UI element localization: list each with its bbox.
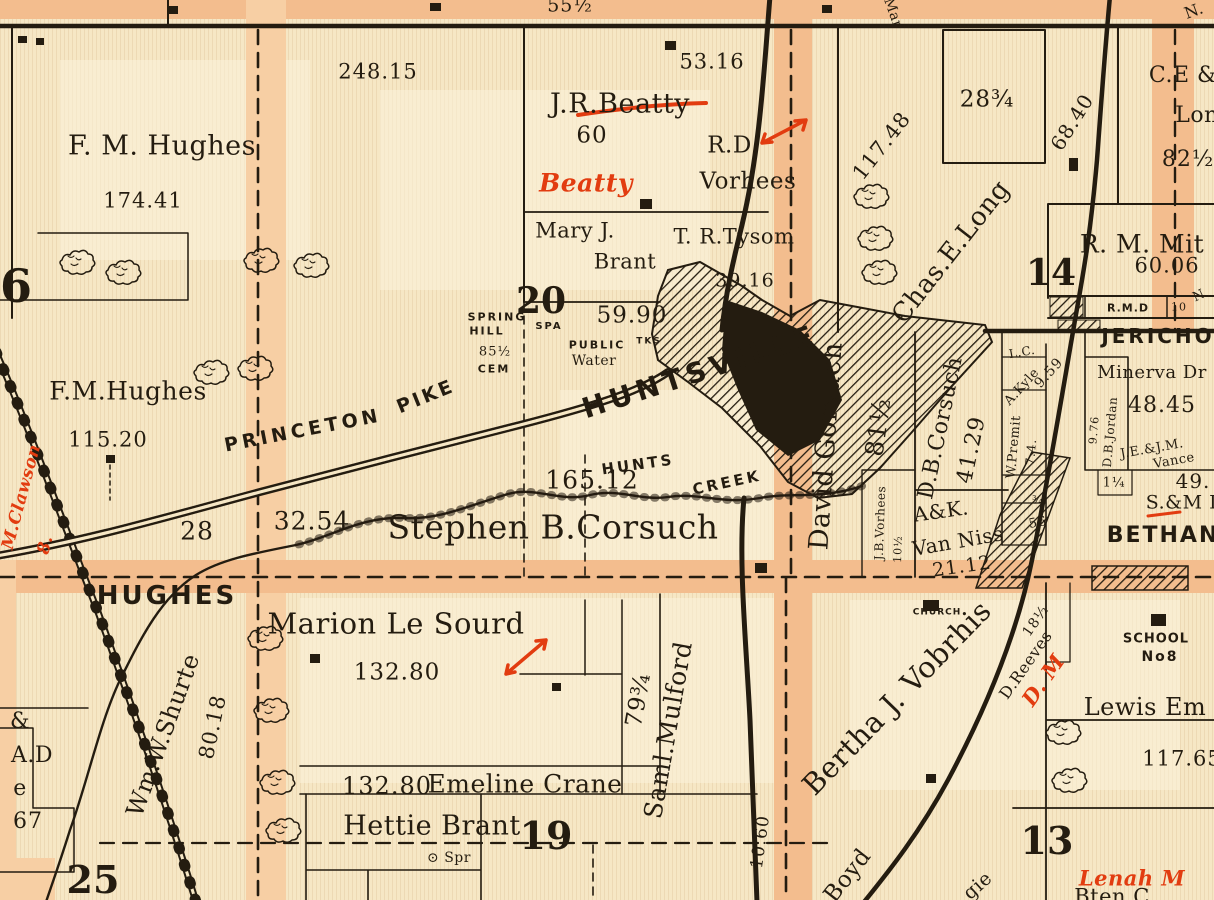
map-label-chas-e-long: Chas.E.Long bbox=[888, 176, 1015, 328]
map-label-80-18: 80.18 bbox=[196, 693, 230, 761]
map-label-60-06: 60.06 bbox=[1134, 256, 1199, 277]
map-label-wm-w-shurte: Wm.W.Shurte bbox=[122, 650, 203, 819]
map-label-no8: No8 bbox=[1141, 650, 1178, 664]
map-label-school: SCHOOL bbox=[1123, 633, 1189, 646]
map-label-53-16: 53.16 bbox=[679, 52, 744, 73]
map-label-132-80: 132.80 bbox=[354, 662, 440, 685]
map-label-115-20: 115.20 bbox=[68, 430, 147, 451]
map-label-9-59: 9.59 bbox=[1032, 355, 1066, 391]
map-label-jericho: JERICHO bbox=[1101, 326, 1214, 346]
map-label-14: 14 bbox=[1026, 255, 1076, 291]
map-label-label: ¾ bbox=[1032, 495, 1044, 506]
map-label-spa: SPA bbox=[535, 322, 562, 332]
map-label-w-premit: W.Premit bbox=[1005, 415, 1023, 479]
map-label-8: 8. bbox=[35, 534, 56, 557]
map-label-lon: Lon bbox=[1175, 105, 1214, 127]
map-label-lewis-em: Lewis Em bbox=[1084, 695, 1207, 719]
map-label-label: & bbox=[10, 711, 30, 733]
map-label-117-48: 117.48 bbox=[849, 108, 914, 184]
map-label-28: 28¾ bbox=[960, 89, 1015, 112]
map-label-f-m-hughes: F.M.Hughes bbox=[49, 379, 207, 404]
map-label-81: 81½ bbox=[862, 396, 895, 458]
map-label-creek: CREEK bbox=[691, 468, 762, 497]
map-label-vorhees: Vorhees bbox=[700, 171, 797, 194]
map-label-saml-mulford: Saml.Mulford bbox=[640, 639, 696, 820]
map-label-21-12: 21.12 bbox=[931, 553, 992, 580]
map-label-117-65: 117.65 bbox=[1142, 749, 1214, 770]
map-label-bertha-j-vobrhis: Bertha J. Vobrhis bbox=[797, 596, 996, 801]
map-label-85: 85½ bbox=[479, 346, 511, 359]
map-label-248-15: 248.15 bbox=[338, 62, 417, 83]
map-label-60: 60 bbox=[576, 125, 607, 148]
map-label-132-80: 132.80 bbox=[342, 774, 432, 798]
map-label-j-b-vorhees: J.B.Vorhees bbox=[873, 486, 888, 561]
map-label-6: 6 bbox=[0, 263, 32, 309]
map-label-a-k: A&K. bbox=[912, 497, 970, 525]
map-label-mary-j: Mary J. bbox=[535, 221, 615, 242]
map-label-brant: Brant bbox=[594, 252, 656, 273]
map-labels: 55½MarN.248.1553.16J.R.Beatty60R.D.Vorhe… bbox=[0, 0, 1214, 900]
map-label-r-d: R.D. bbox=[707, 135, 759, 158]
map-label-s-m-l: S.&M L bbox=[1146, 494, 1214, 513]
map-label-39-16: 39.16 bbox=[715, 272, 774, 291]
map-label-20: 20 bbox=[516, 283, 566, 319]
map-label-e: e bbox=[13, 778, 27, 800]
map-label-25: 25 bbox=[67, 861, 120, 899]
map-label-56: 56 bbox=[1028, 515, 1049, 531]
map-label-n: N. bbox=[1182, 0, 1205, 22]
map-label-7-4: 7.4. bbox=[1024, 438, 1038, 466]
map-label-marion-le-sourd: Marion Le Sourd bbox=[267, 610, 524, 639]
map-label-10-60: 10.60 bbox=[749, 814, 773, 870]
map-label-tks: TKS bbox=[636, 338, 662, 347]
map-label-f-m-hughes: F. M. Hughes bbox=[68, 133, 256, 160]
map-label-d-b-jordan: D.B.Jordan bbox=[1101, 396, 1119, 468]
map-label-van-niss: Van Niss bbox=[911, 523, 1005, 559]
map-label-public: PUBLIC bbox=[569, 340, 626, 351]
map-label-10: 10 bbox=[1171, 302, 1187, 313]
map-label-water: Water bbox=[572, 354, 617, 368]
map-label-cem: CEM bbox=[478, 364, 511, 375]
map-label-emeline-crane: Emeline Crane bbox=[428, 772, 623, 797]
map-label-13: 13 bbox=[1021, 822, 1074, 860]
map-label-41-29: 41.29 bbox=[954, 414, 990, 485]
map-label-j-r-beatty: J.R.Beatty bbox=[550, 91, 690, 118]
map-label-174-41: 174.41 bbox=[103, 191, 182, 212]
map-label-gie: gie bbox=[960, 869, 996, 900]
map-label-hill: HILL bbox=[469, 326, 504, 337]
map-label-48-45: 48.45 bbox=[1128, 395, 1196, 417]
map-label-59-90: 59.90 bbox=[597, 305, 668, 328]
map-label-beatty: Beatty bbox=[539, 171, 633, 196]
map-label-55: 55½ bbox=[547, 0, 593, 16]
map-label-princeton: PRINCETON bbox=[223, 406, 383, 455]
map-label-a-kyle: A.Kyle bbox=[1002, 366, 1042, 408]
map-label-minerva-dr: Minerva Dr bbox=[1097, 364, 1207, 382]
map-label-spr: ⊙ Spr bbox=[427, 851, 471, 865]
map-label-82: 82½ bbox=[1162, 149, 1214, 171]
map-label-huntsville: HUNTSVILLE bbox=[579, 321, 821, 424]
map-label-32-54: 32.54 bbox=[274, 509, 351, 534]
map-label-t-r-tysom: T. R.Tysom bbox=[674, 227, 795, 248]
map-label-n: N bbox=[1191, 288, 1207, 305]
map-label-hettie-brant: Hettie Brant bbox=[343, 813, 521, 840]
map-label-79: 79¾ bbox=[623, 671, 655, 729]
map-label-28: 28 bbox=[180, 519, 214, 544]
plat-map: 55½MarN.248.1553.16J.R.Beatty60R.D.Vorhe… bbox=[0, 0, 1214, 900]
map-label-pike: PIKE bbox=[394, 377, 457, 417]
map-label-stephen-b-corsuch: Stephen B.Corsuch bbox=[387, 511, 718, 544]
map-label-165-12: 165.12 bbox=[545, 468, 638, 493]
map-label-r-m-d: R.M.D bbox=[1107, 303, 1149, 314]
map-label-9-76: 9.76 bbox=[1087, 415, 1100, 444]
map-label-bten-c: Bten C bbox=[1074, 887, 1150, 900]
map-label-boyd: Boyd bbox=[820, 845, 875, 900]
map-label-a-d: A.D bbox=[11, 745, 53, 767]
map-label-49: 49. bbox=[1176, 471, 1211, 491]
map-label-david-gorsuch: David Gorsuch bbox=[805, 341, 846, 551]
map-label-67: 67 bbox=[13, 811, 43, 833]
map-label-hughes: HUGHES bbox=[97, 583, 237, 609]
map-label-1: 1¼ bbox=[1103, 477, 1126, 490]
map-label-l-c: L.C. bbox=[1008, 344, 1036, 360]
map-label-c-e: C.E & bbox=[1149, 65, 1214, 87]
map-label-19: 19 bbox=[520, 817, 573, 855]
map-label-bethany: BETHANY bbox=[1107, 525, 1214, 547]
map-label-10: 10½ bbox=[892, 535, 904, 563]
map-label-mar: Mar bbox=[881, 0, 905, 30]
map-label-68-40: 68.40 bbox=[1047, 90, 1097, 153]
